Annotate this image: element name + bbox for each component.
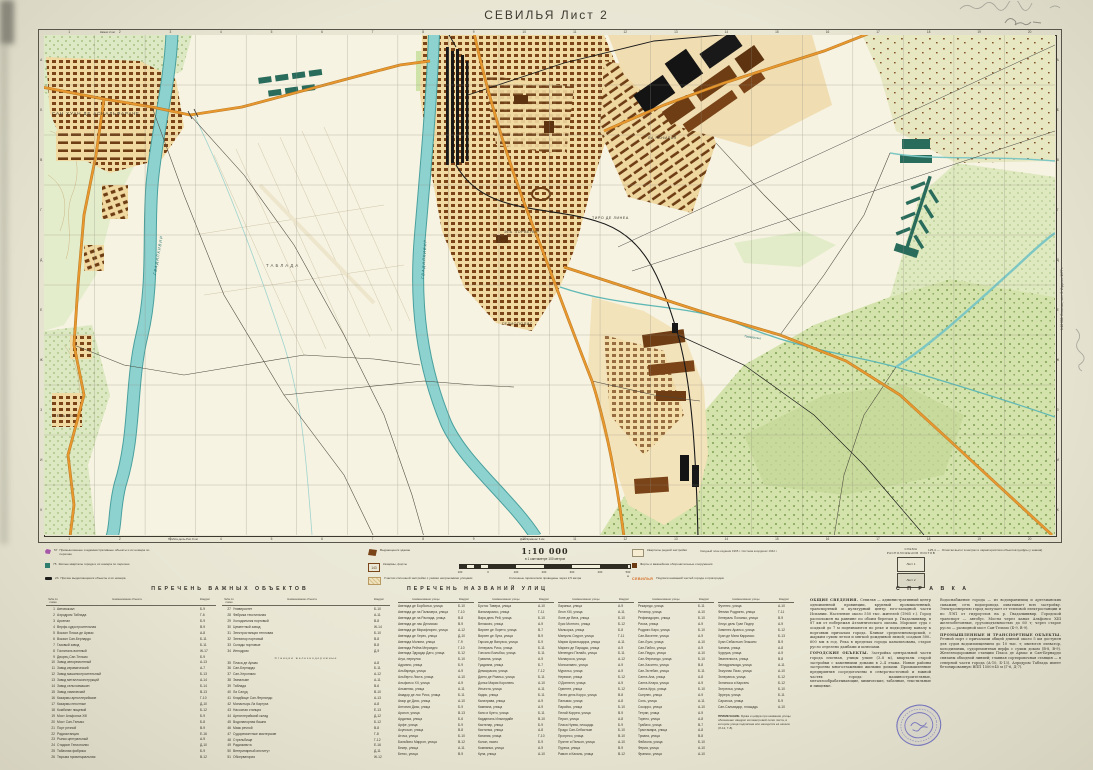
grid-ref: Ж-12: [372, 755, 390, 760]
pencil-note: [955, 1, 1085, 31]
road-destination-note: Дос-Эрманас 6 км: [520, 537, 544, 541]
spravka-column: Водоснабжение города — из водохранилищ и…: [940, 598, 1061, 760]
grid-label: 8: [398, 536, 449, 542]
street-name: Франкос, улица: [638, 752, 696, 758]
scale-bar-label: 400: [598, 570, 603, 574]
pencil-note: [1068, 325, 1090, 375]
street-name: Рамон и Кахаль, улица: [558, 752, 616, 758]
scale-bar-label: 500 м: [626, 570, 631, 578]
sparse-blocks-icon: [632, 549, 644, 557]
legend-item: Участки сплошной застройки с узкими непр…: [368, 577, 472, 585]
legend-item: Форты и важнейшие оборонительные сооруже…: [632, 563, 712, 568]
spravka-title: С П Р А В К А: [800, 586, 1065, 592]
street-name: Сан-Сальвадор, площадь: [718, 705, 776, 711]
spravka-paragraph: Водоснабжение города — из водохранилищ и…: [940, 598, 1061, 631]
scale-bar-label: 100: [514, 570, 519, 574]
table-row: Рамон и Кахаль, улицаВ-12: [558, 752, 634, 758]
district-label: ЭЛЬ ПОРВЕНИР: [504, 230, 540, 234]
object-number: 34: [222, 649, 233, 655]
streets-column: Наименование улицыКвадратФуэнтес, улицаА…: [718, 598, 794, 760]
scale-bar-labels: 1000100200300400500 м: [460, 570, 630, 574]
streets-column: Наименование улицыКвадратРекаредо, улица…: [638, 598, 714, 760]
district-label: ЛА РАНИЛЬЯ: [648, 136, 677, 140]
object-name: Ипподром: [233, 649, 372, 655]
object-number: 51: [222, 755, 233, 760]
scale-ratio: 1:10 000: [455, 546, 635, 556]
grid-label: 13: [651, 536, 702, 542]
column-header: Наименование улицыКвадрат: [638, 598, 714, 603]
scale-bar-label: 0: [487, 570, 489, 574]
table-row: Сан-Сальвадор, площадьА-10: [718, 705, 794, 711]
grid-label: К: [1055, 485, 1061, 535]
grid-label: 15: [752, 536, 803, 542]
scheme-sheet-1: Лист 1: [897, 557, 925, 572]
grid-label: Б: [1055, 85, 1061, 135]
grid-label: 12: [600, 536, 651, 542]
streets-column: Наименование улицыКвадратАвенида де Борб…: [398, 598, 474, 760]
table-row: 26Тюрьма провинциальнаяВ-12: [46, 755, 216, 760]
grid-label: 6: [297, 536, 348, 542]
road-destination-note: Камас 2 км: [100, 30, 115, 34]
column-header: Наименование улицыКвадрат: [718, 598, 794, 603]
legend-item: 143 Казармы, форты: [368, 563, 407, 572]
sheet-scheme: СХЕМАРАСПОЛОЖЕНИЯ ЛИСТОВ Лист 1 Лист 2: [856, 548, 966, 588]
legend-item: Выдающееся здание: [368, 549, 410, 556]
industrial-object-icon: [45, 549, 51, 554]
scale-bar-label: 200: [542, 570, 547, 574]
town-label: САН ХУАН ДЕ АСНАЛЬФАРАЧЕ: [52, 111, 140, 116]
grid-label: 14: [701, 536, 752, 542]
grid-ref: В-9: [456, 752, 474, 758]
grid-ref: В-12: [616, 752, 634, 758]
objects-column: №№ по схемеНаименование объектаКвадрат27…: [222, 598, 390, 760]
legend-item: СЕВИЛЬЯ Подписи названий частей города и…: [632, 577, 724, 581]
spravka-lead: ОБЩИЕ СВЕДЕНИЯ.: [810, 598, 860, 602]
table-row: Куна, улицаА-10: [478, 752, 554, 758]
map-canvas: САН ХУАН ДЕ АСНАЛЬФАРАЧЕ ГВАДАЛКИВИР ГВА…: [44, 35, 1055, 535]
grid-label: 11: [549, 536, 600, 542]
grid-label: 20: [1004, 536, 1055, 542]
legend-item: 125,4 — Отметки высот в метрах и характе…: [928, 549, 1058, 553]
grid-label: А: [1055, 35, 1061, 85]
grid-label: 17: [853, 536, 904, 542]
column-header-cell: Наименование объекта: [236, 598, 368, 604]
streets-note: ПРИМЕЧАНИЕ. Буква и цифра при названии у…: [718, 714, 794, 730]
paper-smudge: [0, 44, 8, 544]
grid-label: И: [1055, 435, 1061, 485]
grid-label: 18: [903, 536, 954, 542]
sub-header: Станции железнодорожные: [222, 656, 390, 660]
objects-table-title: ПЕРЕЧЕНЬ ВАЖНЫХ ОБЪЕКТОВ: [60, 586, 400, 592]
road-destination-note: Пуэбла-дель-Рио 9 км: [168, 537, 198, 541]
grid-label: 5: [246, 536, 297, 542]
contour-note: Сплошные горизонтали проведены через 2,5…: [455, 576, 635, 580]
paper-smudge: [0, 0, 14, 44]
table-row: Бетис, улицаВ-9: [398, 752, 474, 758]
fort-icon: [632, 563, 637, 568]
column-header-cell: Наименование улицы: [478, 598, 534, 601]
column-header-cell: Наименование улицы: [638, 598, 694, 601]
grid-ref: В-12: [198, 755, 216, 760]
grid-label: 4: [196, 536, 247, 542]
grid-label: 7: [347, 536, 398, 542]
column-header-cell: Квадрат: [534, 598, 554, 601]
spravka-lead: ПРОМЫШЛЕННЫЕ И ТРАНСПОРТНЫЕ ОБЪЕКТЫ.: [940, 633, 1061, 637]
scale-bar-label: 100: [458, 570, 463, 574]
village-label: ГЕЛЬВЕС: [54, 414, 76, 418]
grid-ref: А-10: [696, 752, 714, 758]
table-row: 34ИпподромД-9: [222, 649, 390, 655]
column-header: Наименование улицыКвадрат: [558, 598, 634, 603]
grid-label: 19: [954, 536, 1005, 542]
grid-label: З: [1055, 385, 1061, 435]
grid-ref: Д-9: [372, 649, 390, 655]
name-sample-icon: СЕВИЛЬЯ: [632, 577, 653, 581]
grid-label: 2: [95, 536, 146, 542]
column-header-cell: Квадрат: [368, 598, 390, 604]
table-row: Франкос, улицаА-10: [638, 752, 714, 758]
edition-note: 1:10 000. Севилья, лист 2. Издание 1977 …: [1060, 130, 1064, 330]
column-header-cell: Квадрат: [774, 598, 794, 601]
residential-block-icon: [45, 563, 50, 568]
streets-table-title: ПЕРЕЧЕНЬ НАЗВАНИЙ УЛИЦ: [390, 586, 565, 592]
legend-item: Кварталы редкой застройки: [632, 549, 687, 557]
grid-label: 1: [44, 536, 95, 542]
column-header-cell: №№ по схеме: [222, 598, 236, 604]
column-header-cell: №№ по схеме: [46, 598, 60, 604]
objects-column: №№ по схемеНаименование объектаКвадрат1А…: [46, 598, 216, 760]
grid-ref: А-10: [776, 705, 794, 711]
km-grid: [44, 35, 1055, 535]
streets-note-title: ПРИМЕЧАНИЕ.: [718, 714, 741, 718]
street-name: Бетис, улица: [398, 752, 456, 758]
other-object-icon: [45, 577, 52, 580]
grid-label: Ж: [1055, 335, 1061, 385]
column-header-cell: Квадрат: [694, 598, 714, 601]
barracks-icon: 143: [368, 563, 380, 572]
scale-bar: [459, 564, 631, 569]
spravka-paragraph: ОБЩИЕ СВЕДЕНИЯ. Севилья — административн…: [810, 598, 931, 649]
map-sheet: СЕВИЛЬЯ Лист 2 1234567891011121314151617…: [0, 0, 1093, 770]
library-stamp: [888, 695, 952, 757]
streets-column: Наименование улицыКвадратБустос Тавера, …: [478, 598, 554, 760]
district-label: ГЕЛИОПОЛИС: [502, 322, 533, 326]
object-name: Обсерватория: [233, 755, 372, 760]
scale-block: 1:10 000 в 1 сантиметре 100 метров 10001…: [455, 546, 635, 580]
legend-item: 57 Промышленные и административные объек…: [45, 549, 159, 557]
column-header-cell: Наименование улицы: [558, 598, 614, 601]
prominent-building-icon: [368, 549, 377, 556]
table-row: 51ОбсерваторияЖ-12: [222, 755, 390, 760]
spravka-paragraph: ГОРОДСКИЕ ОБЪЕКТЫ. Застройка центральной…: [810, 651, 931, 688]
airfield-label: ТАБЛАДА: [266, 263, 300, 268]
coordinate-note: Сводный план издания 1965 г. Система коо…: [700, 549, 850, 553]
column-header-cell: Наименование улицы: [718, 598, 774, 601]
spravka-lead: ГОРОДСКИЕ ОБЪЕКТЫ.: [810, 651, 871, 655]
street-name: Куна, улица: [478, 752, 536, 758]
column-header: Наименование улицыКвадрат: [478, 598, 554, 603]
dense-blocks-icon: [368, 577, 381, 585]
column-header: №№ по схемеНаименование объектаКвадрат: [222, 598, 390, 606]
object-number: 26: [46, 755, 57, 760]
spravka-paragraph: ПРОМЫШЛЕННЫЕ И ТРАНСПОРТНЫЕ ОБЪЕКТЫ. Реч…: [940, 633, 1061, 670]
column-header-cell: Квадрат: [194, 598, 216, 604]
column-header-cell: Квадрат: [614, 598, 634, 601]
column-header-cell: Наименование объекта: [60, 598, 194, 604]
scale-bar-label: 300: [570, 570, 575, 574]
column-header: №№ по схемеНаименование объектаКвадрат: [46, 598, 216, 606]
column-header-cell: Квадрат: [454, 598, 474, 601]
streets-column: Наименование улицыКвадратЛараньи, улицаА…: [558, 598, 634, 760]
column-header-cell: Наименование улицы: [398, 598, 454, 601]
sheet-title: СЕВИЛЬЯ Лист 2: [0, 8, 1093, 22]
grid-ref: А-10: [536, 752, 554, 758]
grid-label: 9: [448, 536, 499, 542]
column-header: Наименование улицыКвадрат: [398, 598, 474, 603]
legend-item: 75 Жилые кварталы города и их номера по …: [45, 563, 129, 568]
legend-item: 23 Прочие выделяющиеся объекты и их номе…: [45, 577, 126, 581]
scale-subtitle: в 1 сантиметре 100 метров: [455, 557, 635, 561]
district-label: ТИРО ДЕ ЛИНЕА: [592, 216, 629, 220]
elevation-sample-icon: 125,4 —: [928, 549, 940, 553]
object-name: Тюрьма провинциальная: [57, 755, 198, 760]
grid-label: 16: [802, 536, 853, 542]
